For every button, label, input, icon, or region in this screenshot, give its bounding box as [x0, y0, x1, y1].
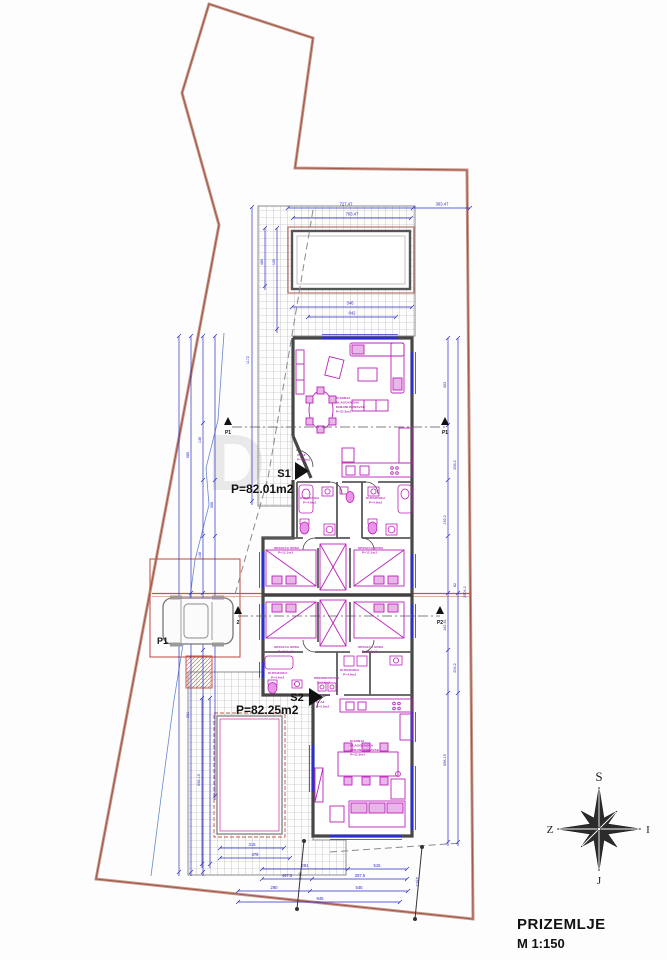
svg-text:139.2: 139.2 [443, 515, 447, 525]
svg-text:585: 585 [186, 452, 190, 458]
svg-text:287.5: 287.5 [355, 873, 366, 878]
scale-label: M 1:150 [517, 936, 565, 951]
section-label-p1-right: P1 [442, 430, 448, 436]
compass-rose-icon: S Z I J [547, 769, 651, 887]
svg-text:315: 315 [249, 842, 257, 847]
svg-text:P=4.6m2: P=4.6m2 [271, 676, 285, 680]
svg-text:146: 146 [198, 552, 202, 558]
section-arrow-p2-right [436, 606, 444, 614]
svg-text:P=12.1m2: P=12.1m2 [278, 650, 293, 654]
svg-text:120: 120 [272, 259, 276, 265]
svg-text:135: 135 [198, 437, 202, 443]
svg-text:BLAGOVAONA: BLAGOVAONA [336, 401, 360, 405]
svg-text:PREDPROSTOR: PREDPROSTOR [314, 676, 340, 680]
svg-text:SPAVAĆA SOBA: SPAVAĆA SOBA [358, 644, 384, 649]
unit-s2-area: P=82.25m2 [236, 703, 299, 717]
compass-east-label: I [646, 824, 650, 836]
svg-text:703.47: 703.47 [346, 212, 359, 217]
compass-south-label: J [597, 875, 602, 887]
svg-text:515: 515 [374, 863, 382, 868]
svg-text:480: 480 [260, 259, 264, 265]
svg-text:P=12.1m2: P=12.1m2 [278, 551, 293, 555]
svg-text:467.5: 467.5 [282, 873, 293, 878]
svg-text:P=4.6m2: P=4.6m2 [343, 673, 357, 677]
svg-text:162.61: 162.61 [443, 619, 447, 631]
svg-text:KUPAONICA: KUPAONICA [366, 496, 386, 500]
compass-north-label: S [595, 769, 602, 784]
svg-text:727.47: 727.47 [340, 202, 353, 207]
floor-plan-page: DUX [0, 0, 667, 960]
svg-text:945: 945 [317, 896, 325, 901]
svg-text:306: 306 [210, 502, 214, 508]
svg-text:2904.2: 2904.2 [463, 586, 467, 598]
section-label-p2: P2 [437, 620, 443, 626]
svg-text:SPAVAĆA SOBA: SPAVAĆA SOBA [274, 644, 300, 649]
svg-text:P=12.1m2: P=12.1m2 [362, 551, 377, 555]
svg-text:P=32.8m2: P=32.8m2 [350, 753, 365, 757]
floor-plan-canvas: DUX [0, 0, 667, 960]
compass-west-label: Z [547, 824, 554, 836]
svg-text:SPAVAĆA SOBA: SPAVAĆA SOBA [358, 545, 384, 550]
svg-text:P=4.6m2: P=4.6m2 [303, 501, 317, 505]
svg-text:P=32.8m2: P=32.8m2 [336, 410, 351, 414]
svg-text:P=3.5m2: P=3.5m2 [297, 458, 311, 462]
svg-text:545: 545 [356, 885, 364, 890]
unit-s1-area: P=82.01m2 [231, 482, 294, 496]
title-block: PRIZEMLJE M 1:150 [517, 916, 606, 951]
svg-text:303: 303 [443, 382, 447, 388]
unit-s1-code: S1 [277, 468, 290, 480]
svg-text:82: 82 [453, 583, 457, 587]
svg-text:P=3.6m2: P=3.6m2 [317, 681, 331, 685]
svg-text:KUPAONICA: KUPAONICA [340, 668, 360, 672]
svg-text:379: 379 [252, 852, 260, 857]
svg-text:P=4.6m2: P=4.6m2 [369, 501, 383, 505]
dashed-line-bottom [330, 843, 462, 852]
svg-text:P=3.5m2: P=3.5m2 [316, 705, 330, 709]
section-arrow-p2-left [234, 606, 242, 614]
svg-text:291: 291 [302, 863, 310, 868]
entrance-stairs-hatch [186, 656, 212, 688]
svg-text:DNEVNI BORAVAK: DNEVNI BORAVAK [350, 748, 380, 752]
svg-text:842: 842 [349, 311, 357, 316]
car-icon [163, 596, 233, 647]
svg-text:363.47: 363.47 [436, 202, 449, 207]
svg-text:BLAGOVAONA: BLAGOVAONA [350, 744, 374, 748]
floor-title: PRIZEMLJE [517, 916, 606, 933]
pool-bottom [214, 713, 285, 837]
svg-text:658.19: 658.19 [197, 774, 201, 786]
svg-text:KUHINJA: KUHINJA [336, 396, 351, 400]
svg-text:SPAVAĆA SOBA: SPAVAĆA SOBA [274, 545, 300, 550]
svg-text:KUPAONICA: KUPAONICA [268, 671, 288, 675]
svg-text:1172: 1172 [246, 356, 250, 364]
svg-text:290: 290 [271, 885, 279, 890]
svg-text:256.2: 256.2 [453, 460, 457, 470]
svg-text:ULAZ: ULAZ [297, 453, 306, 457]
parking-label: P1 [157, 636, 168, 646]
svg-text:658.19: 658.19 [443, 754, 447, 766]
svg-text:204.2: 204.2 [453, 663, 457, 673]
svg-text:P=12.1m2: P=12.1m2 [362, 650, 377, 654]
svg-text:291: 291 [186, 712, 190, 718]
section-label-2: 2 [237, 620, 240, 626]
svg-text:346: 346 [347, 301, 355, 306]
section-label-p1-left: P1 [225, 430, 231, 436]
svg-text:DNEVNI BORAVAK: DNEVNI BORAVAK [336, 405, 366, 409]
svg-text:KUPAONICA: KUPAONICA [300, 496, 320, 500]
svg-text:KUHINJA: KUHINJA [350, 739, 365, 743]
pool-top [288, 227, 414, 293]
